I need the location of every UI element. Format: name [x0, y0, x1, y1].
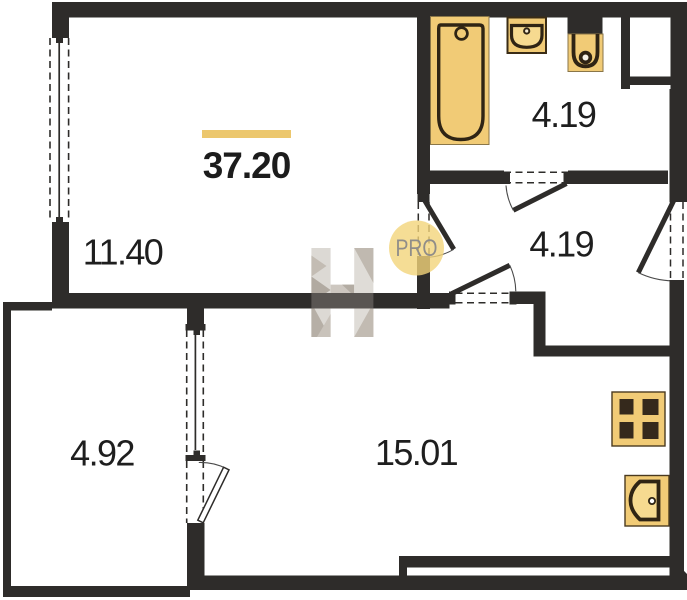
- svg-text:4.19: 4.19: [532, 94, 596, 135]
- svg-text:PRO: PRO: [396, 235, 438, 262]
- svg-text:37.20: 37.20: [203, 145, 291, 186]
- svg-text:4.92: 4.92: [70, 433, 134, 474]
- svg-text:15.01: 15.01: [375, 432, 458, 473]
- svg-text:4.19: 4.19: [529, 224, 593, 265]
- svg-text:11.40: 11.40: [83, 232, 163, 273]
